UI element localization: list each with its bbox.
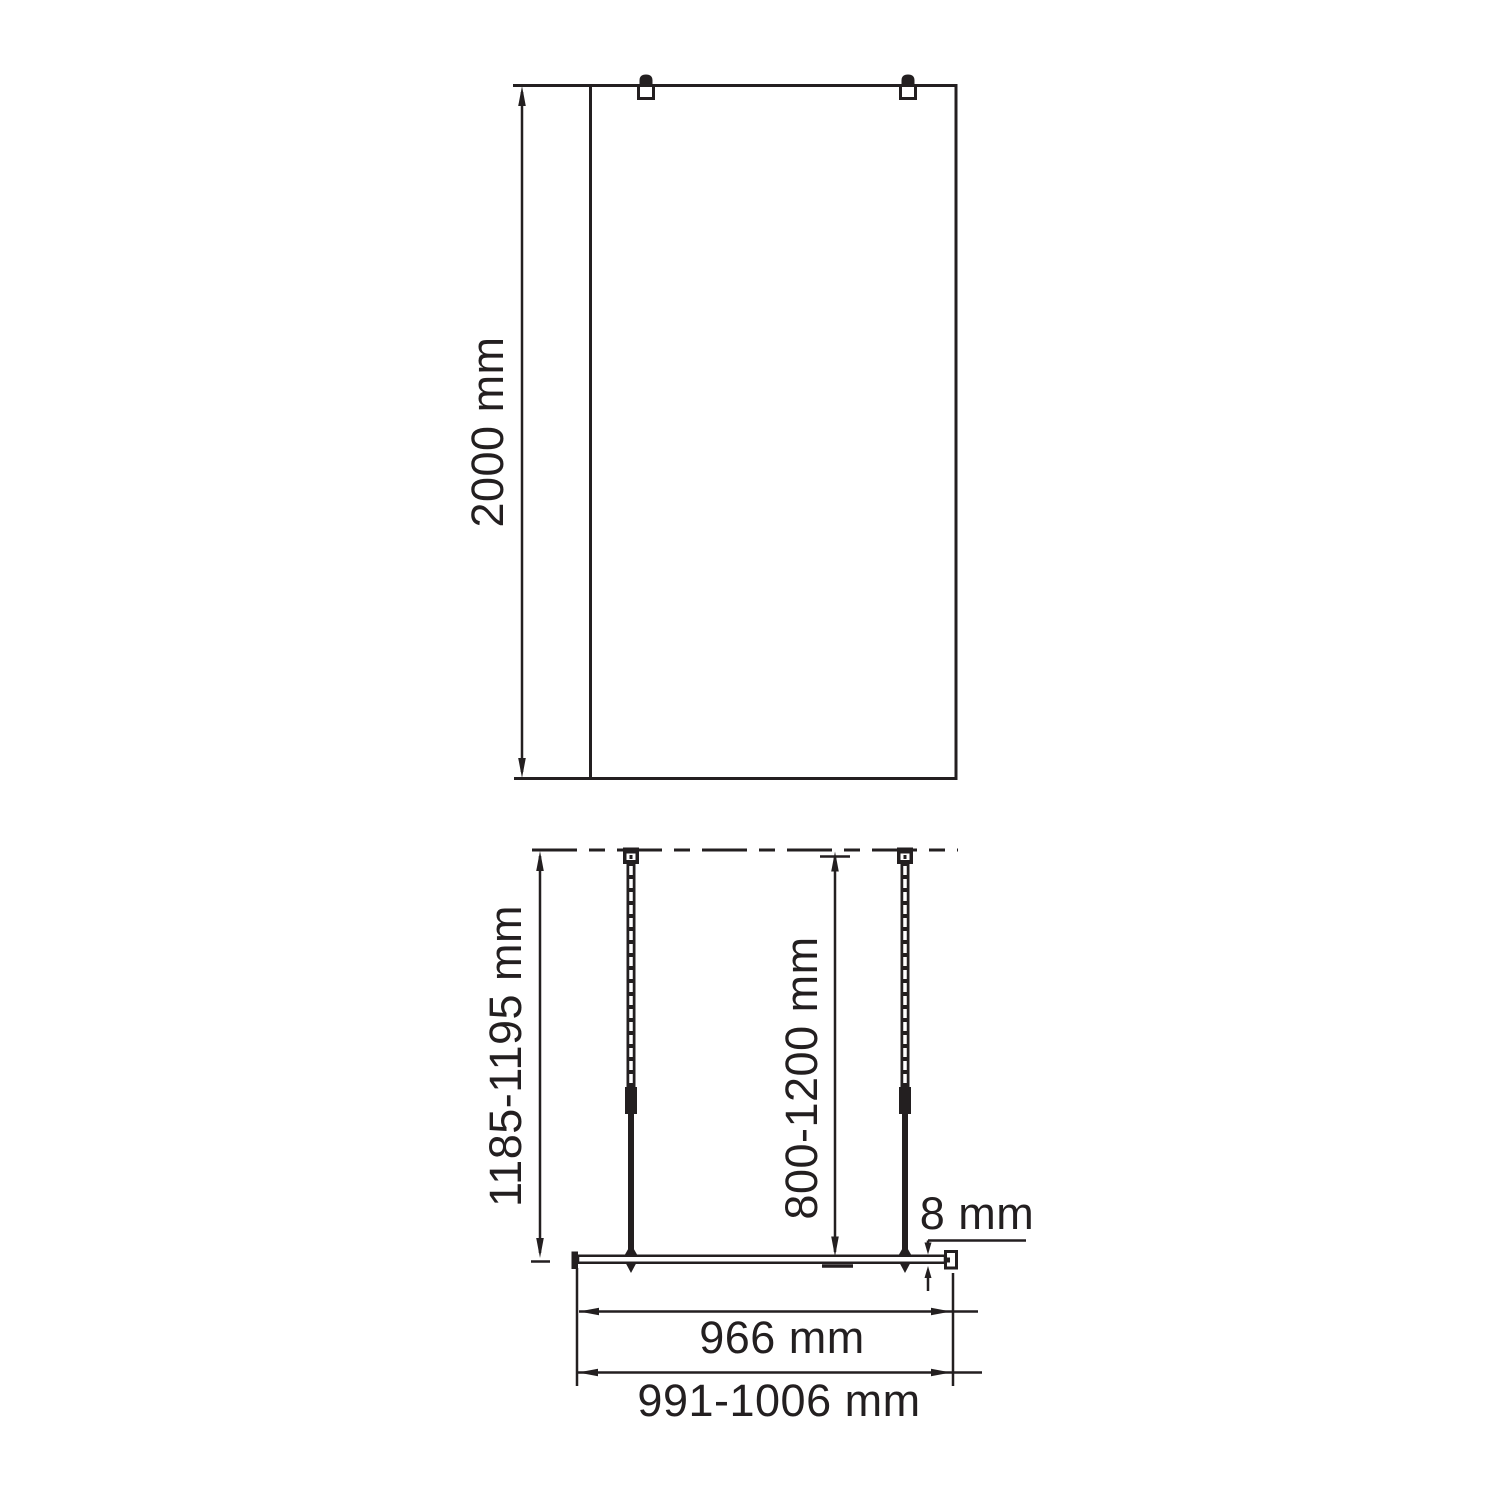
arrow-right-icon xyxy=(931,1308,951,1316)
plan-view: 1185-1195 mm 800-1200 mm xyxy=(480,848,1034,1427)
clamp-body xyxy=(639,86,654,99)
adjust-range-label: 800-1200 mm xyxy=(776,936,827,1219)
overall-width-label: 991-1006 mm xyxy=(637,1375,920,1426)
arrow-down-icon xyxy=(536,1238,544,1258)
shower-screen-technical-drawing: 2000 mm 1185-1195 mm xyxy=(0,0,1500,1500)
glass-panel-front xyxy=(591,86,957,779)
arrow-down-icon xyxy=(518,758,526,778)
height-dimension: 2000 mm xyxy=(462,86,526,778)
glass-section xyxy=(578,1256,945,1263)
glass-width-dimension: 966 mm xyxy=(579,1308,978,1363)
arrow-down-icon xyxy=(925,1243,932,1255)
clamp-knob-icon xyxy=(902,75,915,86)
clamp-knob-icon xyxy=(640,75,653,86)
arrow-down-icon xyxy=(831,1237,839,1257)
arrow-up-icon xyxy=(925,1266,932,1278)
arrow-left-icon xyxy=(578,1369,598,1377)
mounting-clamp-right xyxy=(901,75,916,99)
glass-width-label: 966 mm xyxy=(699,1312,865,1363)
arrow-right-icon xyxy=(931,1369,951,1377)
bar-inner-rod xyxy=(902,1114,908,1254)
clamp-body xyxy=(901,86,916,99)
adjust-range-dimension: 800-1200 mm xyxy=(776,852,853,1267)
height-dimension-label: 2000 mm xyxy=(462,336,513,527)
bar-length-dimension: 1185-1195 mm xyxy=(480,851,550,1262)
bar-coupler xyxy=(899,1087,911,1114)
wall-bracket-pin xyxy=(630,855,633,859)
arrow-up-icon xyxy=(518,86,526,106)
front-view: 2000 mm xyxy=(462,75,956,779)
mounting-clamp-left xyxy=(639,75,654,99)
thickness-label: 8 mm xyxy=(920,1188,1035,1239)
bar-length-label: 1185-1195 mm xyxy=(480,905,531,1207)
wall-profile-tongue xyxy=(946,1258,951,1263)
wall-bracket-pin xyxy=(904,855,907,859)
support-bar-left xyxy=(623,848,639,1274)
bar-inner-rod xyxy=(628,1114,634,1254)
overall-width-dimension: 991-1006 mm xyxy=(578,1369,982,1426)
arrow-up-icon xyxy=(536,851,544,871)
bar-coupler xyxy=(625,1087,637,1114)
arrow-up-icon xyxy=(831,852,839,872)
glass-left-end-cap xyxy=(572,1252,579,1270)
arrow-left-icon xyxy=(579,1308,599,1316)
support-bar-right xyxy=(897,848,913,1274)
thickness-callout: 8 mm xyxy=(920,1188,1035,1291)
